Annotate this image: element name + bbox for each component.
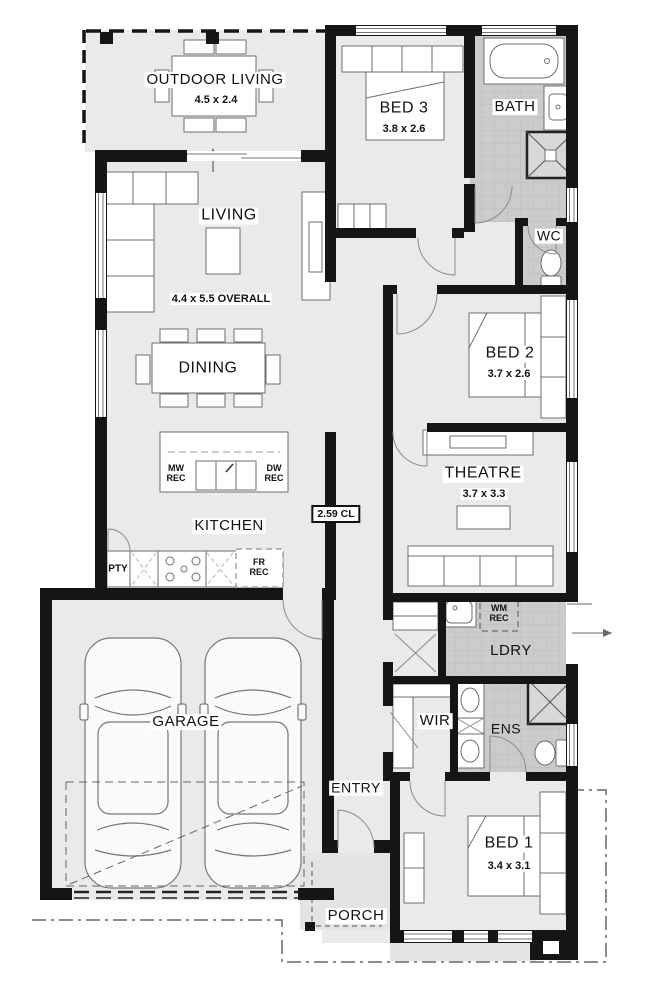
wc-toilet bbox=[541, 250, 561, 287]
garage-label: GARAGE bbox=[150, 714, 221, 730]
ceiling-height-badge: 2.59 CL bbox=[311, 505, 360, 523]
laundry-label: LDRY bbox=[488, 643, 534, 659]
floorplan-drawing bbox=[0, 0, 650, 1000]
living-dims: 4.4 x 5.5 OVERALL bbox=[170, 293, 272, 305]
ens-label: ENS bbox=[489, 722, 523, 737]
fridge-recess-label: FR REC bbox=[249, 558, 268, 578]
bed2-dims: 3.7 x 2.6 bbox=[486, 368, 533, 380]
wir-label: WIR bbox=[418, 713, 453, 729]
kitchen-label: KITCHEN bbox=[192, 518, 265, 534]
living-label: LIVING bbox=[199, 208, 258, 225]
bed3-label: BED 3 bbox=[378, 101, 431, 118]
bed3-dims: 3.8 x 2.6 bbox=[381, 123, 428, 135]
porch-label: PORCH bbox=[326, 908, 387, 924]
washing-machine-recess-label: WM REC bbox=[489, 604, 508, 624]
floorplan: OUTDOOR LIVING 4.5 x 2.4 LIVING 4.4 x 5.… bbox=[0, 0, 650, 1000]
dishwasher-recess-label: DW REC bbox=[264, 464, 283, 484]
outdoor-living-dims: 4.5 x 2.4 bbox=[193, 94, 240, 106]
bath-label: BATH bbox=[493, 99, 538, 115]
pantry-label: PTY bbox=[108, 564, 127, 575]
bed1-dims: 3.4 x 3.1 bbox=[486, 860, 533, 872]
theatre-label: THEATRE bbox=[443, 466, 524, 483]
entry-label: ENTRY bbox=[329, 781, 383, 796]
wc-label: WC bbox=[535, 229, 563, 244]
outdoor-living-label: OUTDOOR LIVING bbox=[144, 72, 285, 88]
theatre-dims: 3.7 x 3.3 bbox=[461, 488, 508, 500]
microwave-recess-label: MW REC bbox=[166, 464, 185, 484]
bed1-label: BED 1 bbox=[483, 836, 536, 853]
bed2-label: BED 2 bbox=[484, 346, 537, 363]
dining-label: DINING bbox=[177, 361, 240, 378]
